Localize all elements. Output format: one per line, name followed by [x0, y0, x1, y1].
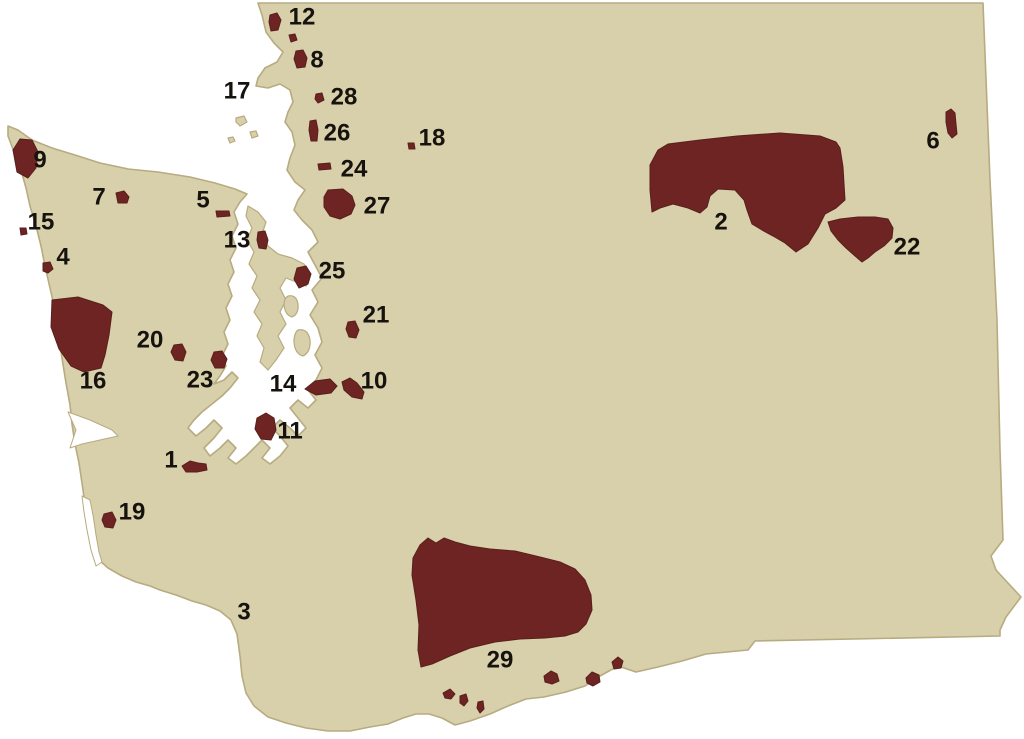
map-canvas: 1234567891011121314151617181920212223242… [0, 0, 1024, 739]
marker-label-15: 15 [28, 209, 55, 236]
marker-label-16: 16 [80, 368, 107, 395]
reservation-11 [255, 413, 276, 440]
marker-label-21: 21 [363, 302, 390, 329]
reservation-15 [20, 228, 27, 235]
marker-label-11: 11 [277, 418, 302, 445]
reservation-12b [289, 34, 297, 42]
reservation-26 [309, 120, 318, 141]
marker-label-6: 6 [926, 128, 939, 155]
reservation-5 [216, 211, 230, 217]
marker-label-4: 4 [56, 244, 70, 271]
vashon-island [294, 330, 310, 356]
marker-label-2: 2 [714, 209, 727, 236]
marker-label-7: 7 [92, 184, 105, 211]
marker-label-26: 26 [324, 120, 351, 147]
bainbridge-island [284, 296, 298, 317]
marker-label-19: 19 [119, 499, 146, 526]
marker-label-23: 23 [187, 367, 214, 394]
reservation-23 [211, 351, 227, 368]
marker-label-5: 5 [196, 187, 209, 214]
marker-label-17: 17 [224, 78, 251, 105]
reservation-25 [294, 266, 311, 288]
marker-label-22: 22 [894, 234, 921, 261]
marker-label-28: 28 [331, 84, 358, 111]
marker-label-25: 25 [319, 258, 346, 285]
marker-label-29: 29 [487, 647, 514, 674]
reservation-24 [318, 163, 331, 170]
marker-label-24: 24 [341, 156, 368, 183]
marker-label-14: 14 [270, 371, 297, 398]
marker-label-10: 10 [361, 368, 388, 395]
washington-reservations-map: 1234567891011121314151617181920212223242… [0, 0, 1024, 739]
marker-label-18: 18 [419, 125, 446, 152]
reservation-16 [51, 297, 112, 372]
marker-label-8: 8 [310, 47, 323, 74]
lopez-island [228, 137, 235, 143]
marker-label-12: 12 [289, 4, 316, 31]
marker-label-1: 1 [164, 447, 177, 474]
reservation-13 [257, 231, 268, 249]
marker-label-13: 13 [224, 227, 251, 254]
marker-label-27: 27 [364, 193, 391, 220]
marker-label-9: 9 [33, 147, 46, 174]
reservation-18 [408, 143, 415, 149]
marker-label-20: 20 [137, 327, 164, 354]
san-juan-island [236, 116, 247, 126]
marker-label-3: 3 [237, 599, 250, 626]
orcas-island [250, 131, 258, 138]
